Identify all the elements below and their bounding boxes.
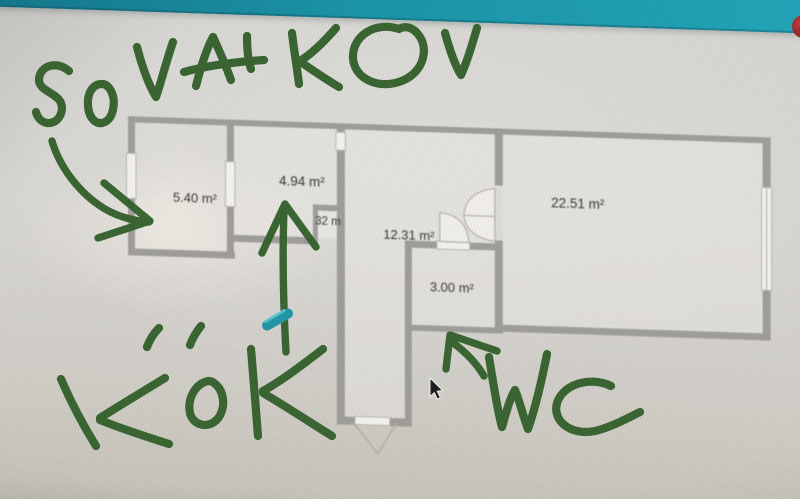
room-bedroom-left[interactable] bbox=[135, 122, 227, 251]
entrance-gap bbox=[355, 416, 390, 425]
window-left bbox=[126, 153, 135, 198]
floor-plan-canvas[interactable]: 5.40 m² 4.94 m² 32 m 12.31 m² 3.00 m² 22… bbox=[122, 114, 782, 481]
floor-plan-drawing: 5.40 m² 4.94 m² 32 m 12.31 m² 3.00 m² 22… bbox=[122, 114, 782, 481]
door-swing-entrance bbox=[353, 422, 397, 454]
opening-bedrooms bbox=[225, 161, 234, 206]
room-area-label: 5.40 m² bbox=[173, 190, 218, 206]
room-area-label: 12.31 m² bbox=[383, 227, 435, 244]
app-top-bar bbox=[0, 0, 800, 34]
room-area-label: 3.00 m² bbox=[430, 279, 475, 295]
annotation-sovalkov: SOVALKOV bbox=[36, 27, 477, 123]
room-corridor[interactable] bbox=[345, 238, 405, 418]
room-area-label: 22.51 m² bbox=[551, 195, 605, 212]
room-area-label: 32 m bbox=[315, 215, 341, 228]
room-living[interactable] bbox=[503, 135, 763, 334]
room-area-label: 4.94 m² bbox=[279, 173, 325, 190]
photographed-screen: 5.40 m² 4.94 m² 32 m 12.31 m² 3.00 m² 22… bbox=[0, 0, 800, 499]
door-bedroom-hallway bbox=[336, 132, 345, 150]
